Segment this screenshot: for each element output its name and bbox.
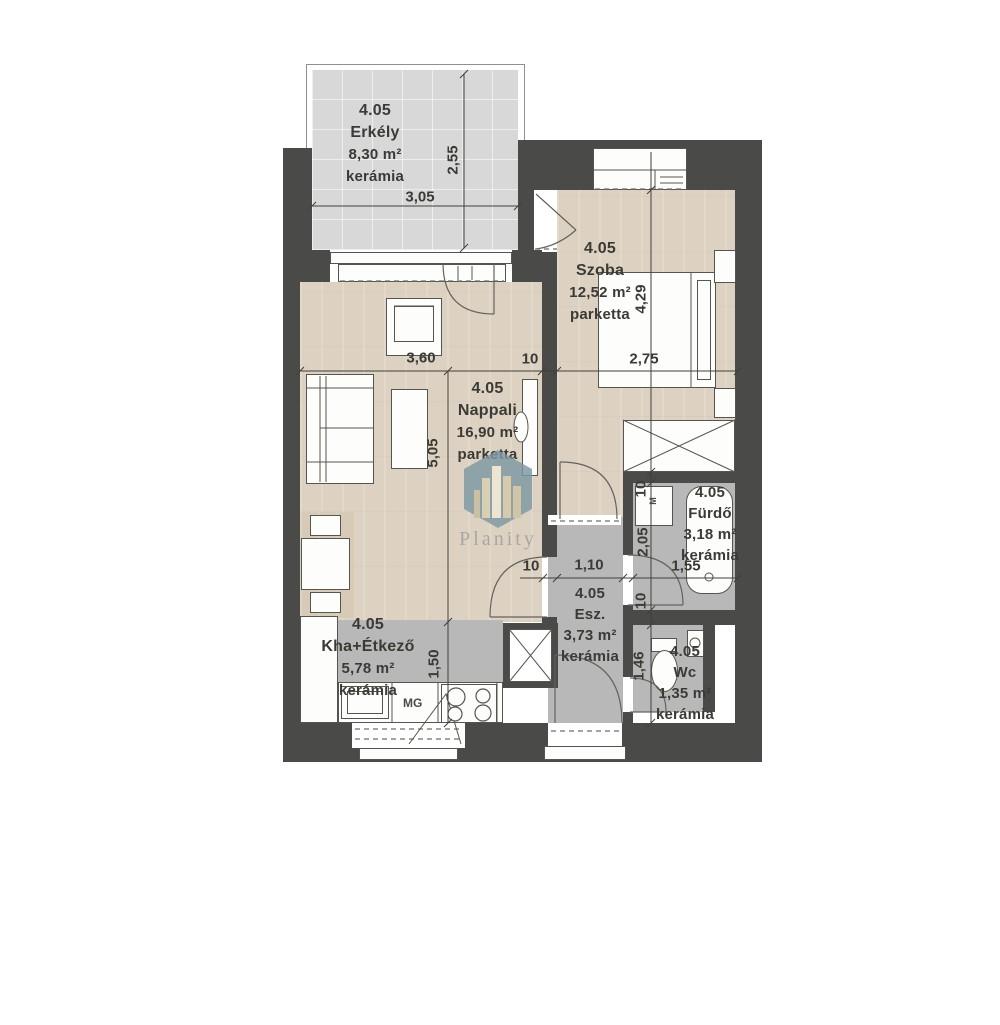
room-area: 3,18 m² (655, 524, 765, 545)
room-name: Erkély (295, 122, 455, 144)
wall-east (735, 190, 762, 723)
room-floor-type: kerámia (635, 704, 735, 725)
wc-door-opening (623, 677, 633, 712)
room-floor-type: kerámia (655, 545, 765, 566)
entry-door-opening (548, 723, 622, 746)
room-floor-type: kerámia (295, 166, 455, 188)
room-label-bathroom: 4.05 Fürdő 3,18 m² kerámia (655, 482, 765, 566)
room-label-kitchen: 4.05 Kha+Étkező 5,78 m² kerámia (293, 614, 443, 702)
room-area: 1,35 m² (635, 683, 735, 704)
sofa (306, 374, 374, 484)
room-name: Kha+Étkező (293, 636, 443, 658)
room-name: Wc (635, 662, 735, 683)
kitchen-window (352, 723, 465, 748)
room-number: 4.05 (295, 100, 455, 122)
dining-table (301, 538, 350, 590)
dim-wall-top: 10 (522, 351, 539, 368)
room-area: 3,73 m² (540, 625, 640, 646)
wall-window-left-stub (300, 250, 330, 282)
room-floor-type: kerámia (293, 680, 443, 702)
room-name: Esz. (540, 604, 640, 625)
nightstand-bottom (714, 388, 736, 418)
room-number: 4.05 (293, 614, 443, 636)
planity-logo-icon (456, 448, 540, 532)
room-number: 4.05 (540, 583, 640, 604)
room-name: Nappali (425, 400, 550, 422)
dim-balcony-width: 3,05 (405, 189, 434, 206)
room-name: Fürdő (655, 503, 765, 524)
room-label-balcony: 4.05 Erkély 8,30 m² kerámia (295, 100, 455, 188)
kitchen-window-sill (359, 748, 458, 760)
dim-hall-width: 1,10 (574, 557, 603, 574)
room-number: 4.05 (535, 238, 665, 260)
wardrobe (623, 420, 735, 472)
wall-bath-wc (633, 610, 735, 625)
room-label-hall: 4.05 Esz. 3,73 m² kerámia (540, 583, 640, 667)
bedroom-window (593, 148, 687, 190)
dim-bedroom-width: 2,75 (629, 351, 658, 368)
room-label-wc: 4.05 Wc 1,35 m² kerámia (635, 641, 735, 725)
dining-chair-top (310, 515, 341, 536)
room-number: 4.05 (425, 378, 550, 400)
room-label-bedroom: 4.05 Szoba 12,52 m² parketta (535, 238, 665, 326)
room-number: 4.05 (635, 641, 735, 662)
room-floor-type: parketta (535, 304, 665, 326)
room-area: 12,52 m² (535, 282, 665, 304)
coffee-table (391, 389, 428, 469)
room-floor-type: kerámia (540, 646, 640, 667)
dim-living-width: 3,60 (406, 350, 435, 367)
room-name: Szoba (535, 260, 665, 282)
armchair-seat (394, 306, 434, 342)
bed-pillow (697, 280, 711, 380)
dim-hall-wall: 10 (523, 558, 540, 575)
room-number: 4.05 (655, 482, 765, 503)
hall-threshold (548, 515, 621, 525)
stove (441, 684, 497, 723)
bedroom-hall-floor (557, 472, 623, 518)
wall-hall-wc-stub (623, 712, 633, 723)
room-area: 16,90 m² (425, 422, 550, 444)
entry-door-sill (544, 746, 626, 760)
balcony-door-window (338, 264, 506, 282)
nightstand-top (714, 250, 736, 283)
dim-bath-wall-top: 10 (633, 481, 650, 498)
room-area: 5,78 m² (293, 658, 443, 680)
balcony-door-sill (330, 252, 512, 264)
dim-bath-depth: 2,05 (635, 527, 652, 556)
dining-chair-bottom (310, 592, 341, 613)
wall-balcony-right (518, 140, 534, 252)
floor-plan: 3,05 2,55 3,60 10 2,75 4,29 5,05 1,50 10… (0, 0, 1000, 1025)
wall-hall-bath-upper (623, 483, 633, 555)
room-area: 8,30 m² (295, 144, 455, 166)
planity-logo-text: Planity (428, 528, 568, 551)
